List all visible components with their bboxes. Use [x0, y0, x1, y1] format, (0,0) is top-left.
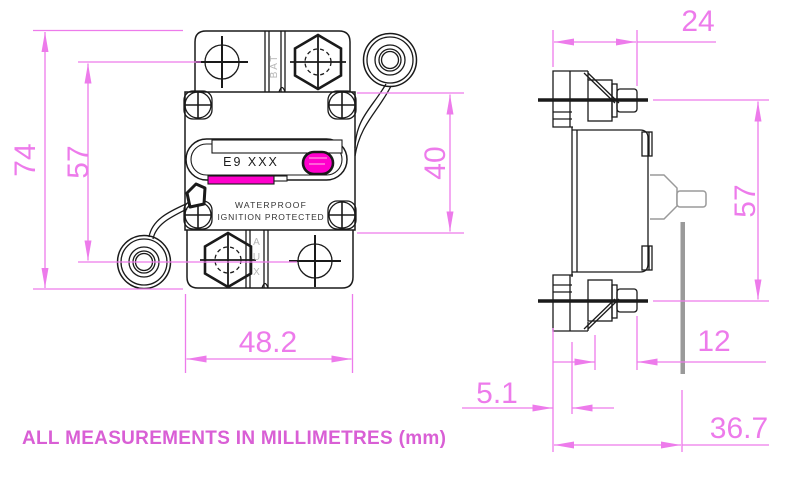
dim-value-body-width: 48.2 — [239, 326, 297, 359]
seal-cap-bottom-left — [118, 204, 188, 289]
terminal-marking-bottom: AUX — [251, 237, 264, 287]
front-bottom-terminal-tab — [187, 230, 353, 288]
side-top-terminal — [538, 71, 648, 127]
marking-ignition-protected: IGNITION PROTECTED — [218, 212, 325, 222]
dim-value-mount-hole-spacing: 57 — [62, 145, 95, 178]
terminal-nut-top-hex — [290, 34, 346, 90]
technical-drawing: E9 XXX WATERPROOF IGNITION PROTECTED — [0, 0, 804, 477]
terminal-marking-top: BAT — [269, 46, 281, 86]
seal-cap-top-right — [355, 34, 417, 157]
trip-lever — [187, 184, 205, 207]
marking-waterproof: WATERPROOF — [235, 200, 307, 210]
dim-value-top-depth: 24 — [681, 5, 714, 38]
reset-button-side — [650, 175, 706, 219]
mount-hole-bottom-right-crosshair — [289, 235, 341, 287]
dim-value-body-height: 40 — [419, 146, 452, 179]
panel-surface-line — [681, 222, 686, 374]
breaker-rating-label: E9 XXX — [223, 155, 279, 169]
dimensions: 74 57 40 48.2 24 57 12 5.1 36.7 — [9, 5, 769, 452]
drawing-canvas: E9 XXX WATERPROOF IGNITION PROTECTED — [0, 0, 804, 477]
terminal-nut-bottom-hex — [200, 232, 256, 288]
front-view: E9 XXX WATERPROOF IGNITION PROTECTED — [118, 31, 417, 289]
indicator-strip — [208, 176, 287, 184]
side-view — [538, 71, 706, 374]
side-body — [572, 127, 652, 277]
dim-value-flange-thickness: 5.1 — [476, 377, 518, 410]
mount-hole-top-left-crosshair — [196, 36, 248, 88]
measurements-note: ALL MEASUREMENTS IN MILLIMETRES (mm) — [22, 428, 446, 450]
dim-value-stud-length: 12 — [697, 325, 730, 358]
dim-value-overall-depth: 36.7 — [710, 412, 768, 445]
side-bottom-terminal — [538, 275, 648, 331]
reset-button-front — [303, 152, 333, 174]
dim-value-overall-height: 74 — [9, 143, 42, 176]
dim-value-terminal-spacing: 57 — [729, 184, 762, 217]
